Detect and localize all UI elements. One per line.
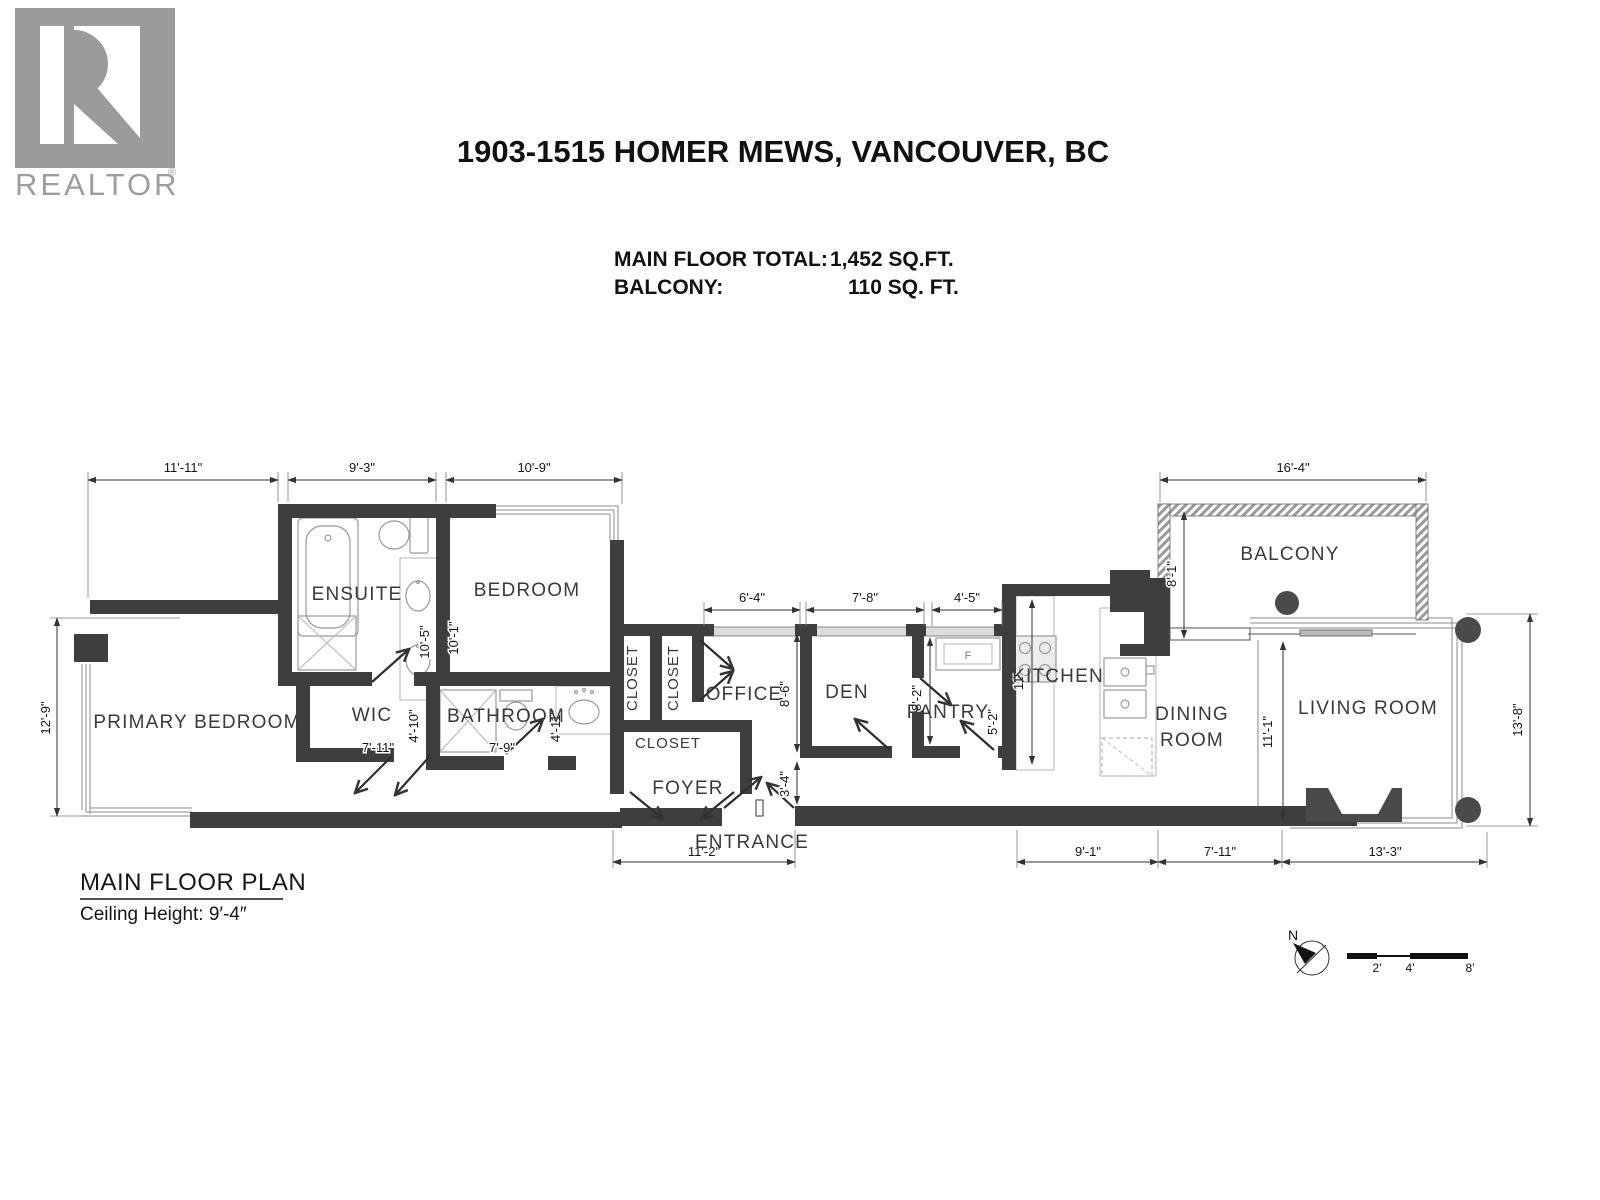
scale-tick-8: 8' <box>1466 961 1475 975</box>
floor-plan-canvas: REALTOR ® 1903-1515 HOMER MEWS, VANCOUVE… <box>0 0 1600 1200</box>
floor-plan-page: REALTOR ® 1903-1515 HOMER MEWS, VANCOUVE… <box>0 0 1600 1200</box>
scale-bar: 2' 4' 8' <box>1347 953 1474 975</box>
fridge-label: F <box>965 650 972 662</box>
ensuite-shower <box>298 616 356 670</box>
area-row1-value: 1,452 SQ.FT. <box>830 248 954 271</box>
ensuite-toilet <box>379 517 428 553</box>
room-label-bathroom: BATHROOM <box>447 706 565 727</box>
balcony-column <box>1275 591 1299 615</box>
dim-wic-width: 7'-11" <box>362 740 395 755</box>
dim-ensuite-depth: 10'-5" <box>417 625 432 659</box>
room-label-closet-2: CLOSET <box>665 645 682 711</box>
dim-balcony-width: 16'-4" <box>1276 460 1310 475</box>
area-row2-label: BALCONY: <box>614 276 723 299</box>
fireplace <box>1306 788 1402 822</box>
living-room-column-top <box>1455 617 1481 643</box>
living-room-column-bottom <box>1455 797 1481 823</box>
page-title: 1903-1515 HOMER MEWS, VANCOUVER, BC <box>457 134 1109 169</box>
scale-tick-2: 2' <box>1373 961 1382 975</box>
dim-left-height: 12'-9" <box>38 701 53 735</box>
dim-top-bedroom: 10'-9" <box>517 460 551 475</box>
area-summary: MAIN FLOOR TOTAL: 1,452 SQ.FT. BALCONY: … <box>614 248 959 299</box>
room-label-closet-3: CLOSET <box>635 735 701 752</box>
dim-living-depth: 13'-8" <box>1510 703 1525 737</box>
dim-top-ensuite: 9'-3" <box>349 460 375 475</box>
north-arrow: N <box>1288 927 1329 975</box>
dim-balcony-side: 8'-1" <box>1164 561 1179 587</box>
area-row1-label: MAIN FLOOR TOTAL: <box>614 248 828 271</box>
office-den-window <box>704 627 1002 636</box>
room-label-ensuite: ENSUITE <box>312 584 403 605</box>
plan-name: MAIN FLOOR PLAN <box>80 869 306 896</box>
dim-top-primary: 11'-11" <box>164 460 203 475</box>
fridge: F <box>936 638 1000 670</box>
dim-dining-depth: 11'-1" <box>1260 716 1275 749</box>
room-label-dining-2: ROOM <box>1160 730 1224 751</box>
area-row2-value: 110 SQ. FT. <box>848 276 959 299</box>
room-label-pantry: PANTRY <box>907 702 990 723</box>
realtor-logo: REALTOR ® <box>15 8 180 202</box>
dim-entry-depth: 3'-4" <box>777 771 792 797</box>
scale-tick-4: 4' <box>1406 961 1415 975</box>
room-label-den: DEN <box>825 682 869 703</box>
room-label-entrance: ENTRANCE <box>695 832 809 853</box>
room-label-dining-1: DINING <box>1155 704 1229 725</box>
room-label-office: OFFICE <box>706 684 783 705</box>
room-label-wic: WIC <box>352 705 393 726</box>
dim-bath-width: 7'-9" <box>489 740 515 755</box>
bathtub <box>298 518 358 636</box>
dim-pantry-width: 4'-5" <box>954 590 980 605</box>
room-label-kitchen: KITCHEN <box>1012 666 1104 687</box>
dim-bedroom-depth: 10'-1" <box>446 621 461 655</box>
dim-bottom-living: 13'-3" <box>1368 844 1402 859</box>
room-label-balcony: BALCONY <box>1240 544 1339 565</box>
room-label-foyer: FOYER <box>652 778 723 799</box>
dim-office-width: 6'-4" <box>739 590 765 605</box>
balcony-sliding-door <box>1170 628 1416 640</box>
logo-registered-mark: ® <box>168 167 176 179</box>
room-label-closet-1: CLOSET <box>624 645 641 711</box>
room-label-living-room: LIVING ROOM <box>1298 698 1438 719</box>
plan-footer: MAIN FLOOR PLAN Ceiling Height: 9′-4″ <box>80 869 306 925</box>
dim-bottom-dining: 7'-11" <box>1204 844 1237 859</box>
dim-bottom-kitchen: 9'-1" <box>1075 844 1101 859</box>
ceiling-height: Ceiling Height: 9′-4″ <box>80 904 247 925</box>
north-label: N <box>1288 927 1298 943</box>
dim-den-width: 7'-8" <box>852 590 878 605</box>
dim-wic-depth: 4'-10" <box>406 709 421 743</box>
logo-word: REALTOR <box>15 167 180 202</box>
entrance-threshold <box>756 800 763 816</box>
room-label-bedroom: BEDROOM <box>474 580 581 601</box>
room-label-primary-bedroom: PRIMARY BEDROOM <box>93 712 300 733</box>
